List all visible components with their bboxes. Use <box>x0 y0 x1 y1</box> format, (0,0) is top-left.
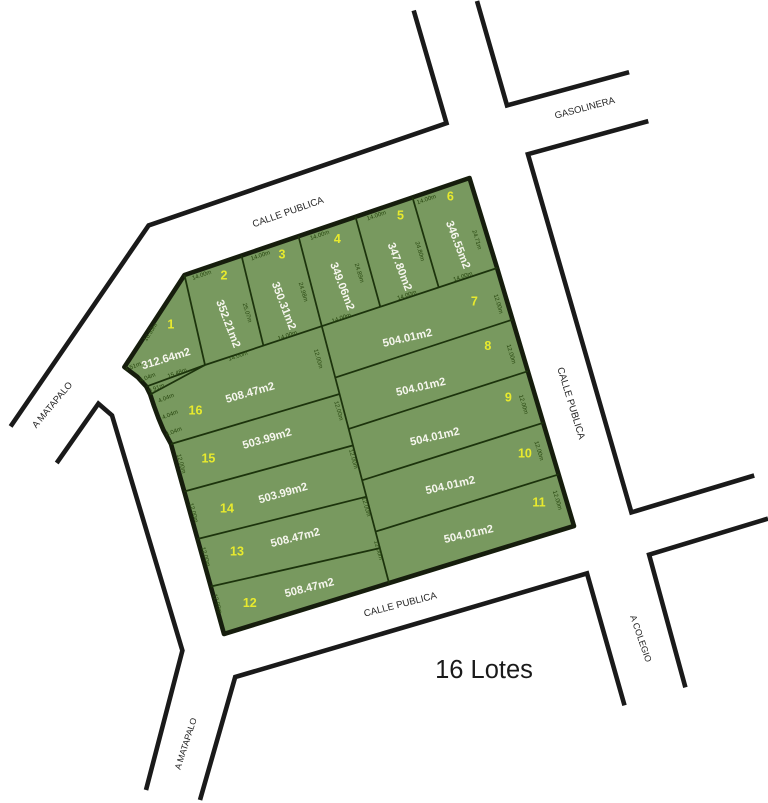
svg-text:5: 5 <box>397 209 404 223</box>
svg-text:11: 11 <box>532 495 545 509</box>
svg-text:6: 6 <box>447 189 454 203</box>
svg-text:12: 12 <box>243 596 257 610</box>
svg-text:16: 16 <box>189 403 203 417</box>
svg-text:4: 4 <box>334 232 341 246</box>
svg-text:9: 9 <box>505 390 512 404</box>
svg-text:14: 14 <box>220 502 234 516</box>
svg-text:16 Lotes: 16 Lotes <box>435 656 533 684</box>
svg-text:8: 8 <box>484 339 491 353</box>
svg-text:3: 3 <box>279 247 286 261</box>
svg-text:2: 2 <box>221 268 228 282</box>
svg-text:7: 7 <box>471 294 478 308</box>
svg-text:15: 15 <box>201 452 215 466</box>
svg-text:10: 10 <box>518 446 532 460</box>
svg-text:1: 1 <box>167 317 174 331</box>
svg-text:13: 13 <box>230 544 244 558</box>
